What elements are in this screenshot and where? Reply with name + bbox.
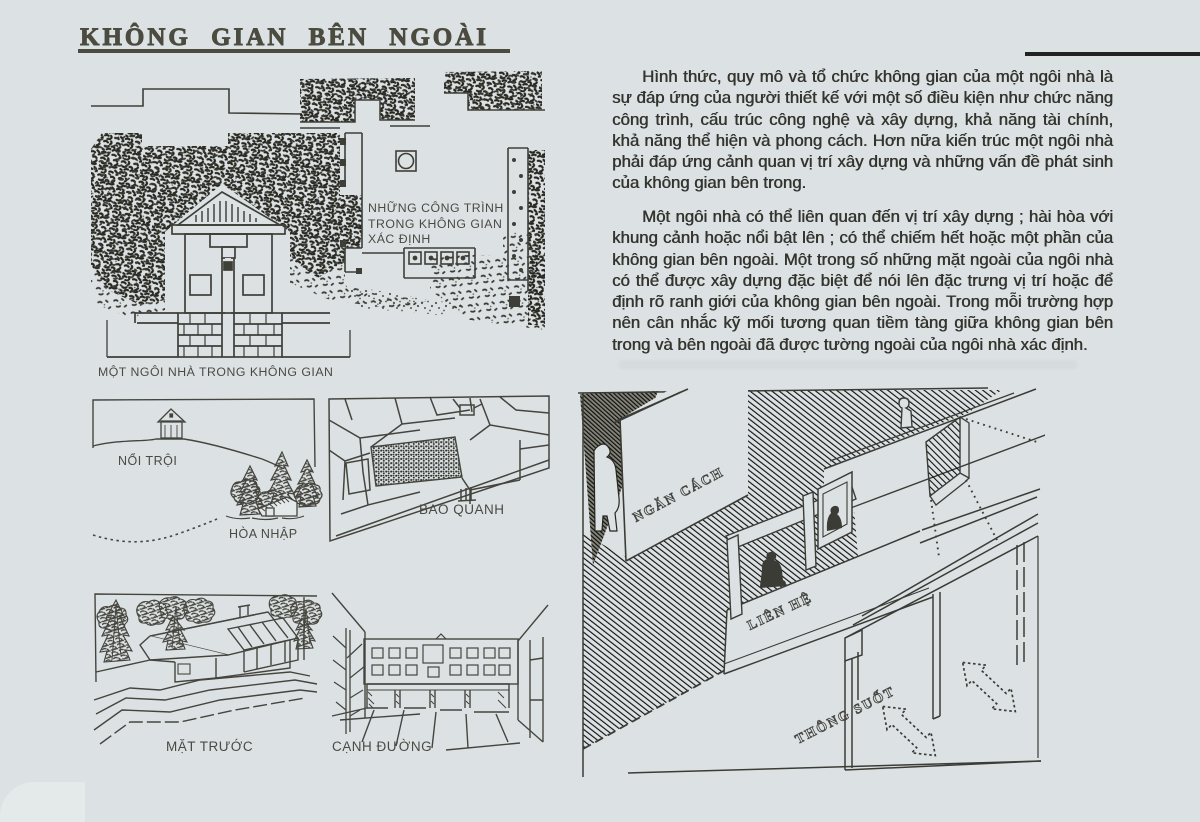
svg-text:NỔI TRỘI: NỔI TRỘI xyxy=(118,453,177,468)
svg-text:BAO QUANH: BAO QUANH xyxy=(419,502,505,517)
svg-text:MẶT TRƯỚC: MẶT TRƯỚC xyxy=(166,739,253,754)
svg-text:HÒA NHẬP: HÒA NHẬP xyxy=(229,526,298,541)
svg-text:CẠNH ĐƯỜNG: CẠNH ĐƯỜNG xyxy=(332,739,432,754)
